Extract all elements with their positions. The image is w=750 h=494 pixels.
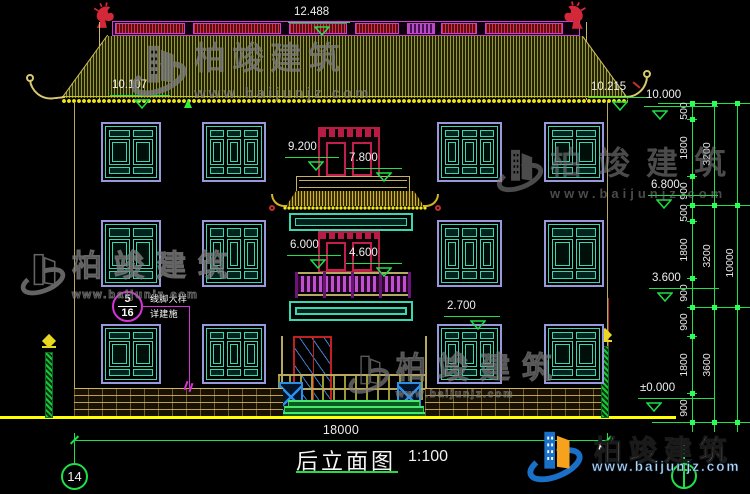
elevation-triangle-icon	[308, 158, 324, 168]
dimension-tick-marker	[735, 101, 740, 106]
window-pane-bot	[480, 369, 494, 376]
window	[101, 122, 161, 182]
window-inner-frame	[206, 126, 262, 178]
window-pane	[480, 228, 494, 279]
window-pane-top	[133, 130, 154, 137]
window-glass	[230, 242, 238, 267]
window-pane-top	[462, 332, 476, 339]
window-pane-mid	[445, 341, 459, 367]
window-pane-top	[552, 332, 573, 339]
window-pane-bot	[109, 271, 130, 279]
window-glass	[483, 242, 491, 267]
ridge-hatch-segment	[441, 23, 477, 34]
window-pane-bot	[133, 271, 154, 279]
window-pane-bot	[244, 369, 258, 376]
window-pane-mid	[109, 341, 130, 367]
window-pane-mid	[133, 239, 154, 270]
window-glass	[579, 242, 594, 267]
window-pane-top	[576, 130, 597, 137]
window-glass	[112, 242, 127, 267]
window-pane-mid	[552, 341, 573, 367]
window-pane-bot	[227, 167, 241, 174]
dimension-value: 1800	[678, 136, 690, 159]
ridge-hatch-segment	[355, 23, 399, 34]
window-pane-top	[480, 332, 494, 339]
watermark-url-text: www.baijunjz.com	[550, 187, 726, 200]
dimension-chain-line	[692, 103, 693, 432]
window-inner-frame	[548, 126, 600, 178]
window-glass	[213, 344, 221, 364]
window-glass	[579, 142, 594, 162]
dimension-tick-marker	[690, 219, 695, 224]
dimension-tick-marker	[690, 117, 695, 122]
dimension-value: 900	[678, 399, 690, 417]
window-pane-bot	[133, 369, 154, 376]
window-inner-frame	[105, 126, 157, 178]
window-pane	[210, 130, 224, 174]
elevation-triangle-icon	[612, 98, 628, 108]
detail-callout-bubble: 5 16	[112, 291, 143, 322]
dimension-value: 500	[678, 204, 690, 222]
grid-bubble: 14	[61, 463, 88, 490]
window-pane-mid	[462, 239, 476, 270]
window-pane-top	[244, 130, 258, 137]
window-inner-frame	[548, 328, 600, 380]
window-pane-bot	[552, 167, 573, 174]
grid-bubble-number: 14	[67, 469, 81, 484]
pavilion-tassel-icon	[269, 205, 275, 211]
window-pane-bot	[462, 369, 476, 376]
window-pane-bot	[552, 271, 573, 279]
window-pane-top	[576, 332, 597, 339]
brand-logo-url: www.baijunjz.com	[592, 459, 741, 474]
ridge-hatch-segment	[193, 23, 281, 34]
window-pane-top	[480, 228, 494, 237]
window-pane-mid	[244, 239, 258, 270]
window	[544, 324, 604, 384]
window-glass	[112, 344, 127, 364]
ridge-dragon-left-icon	[90, 2, 117, 30]
window-glass	[555, 142, 570, 162]
elevation-triangle-icon	[310, 256, 326, 266]
pavilion-upper-door	[326, 142, 346, 176]
grid-drop-line	[74, 441, 75, 463]
elevation-label: 10.215	[591, 81, 626, 93]
window-pane-bot	[445, 369, 459, 376]
window-pane	[576, 228, 597, 279]
elevation-triangle-icon	[470, 317, 486, 327]
window-pane-bot	[480, 271, 494, 279]
eave-curl-right-hook	[643, 70, 651, 78]
window-glass	[213, 242, 221, 267]
dimension-tick-marker	[690, 391, 695, 396]
window-glass	[136, 242, 151, 267]
window-pane-top	[109, 332, 130, 339]
elevation-triangle-icon	[656, 196, 672, 206]
callout-text-bottom: 详建施	[150, 307, 178, 320]
window-pane	[227, 228, 241, 279]
leader-arrow-icon	[183, 96, 193, 114]
railing-post	[351, 272, 354, 298]
window-pane	[227, 130, 241, 174]
pavilion-ridge-beam	[296, 176, 410, 192]
window-pane-top	[133, 228, 154, 237]
window-glass	[112, 142, 127, 162]
eave-curl-left	[29, 76, 65, 101]
callout-leader-h	[143, 306, 189, 307]
elevation-triangle-icon	[657, 289, 673, 299]
window-pane	[244, 228, 258, 279]
window-pane	[445, 228, 459, 279]
window-pane-mid	[576, 139, 597, 165]
window-glass	[465, 242, 473, 267]
window-pane	[109, 130, 130, 174]
window-glass	[579, 344, 594, 364]
window-pane-top	[462, 228, 476, 237]
window-glass	[448, 142, 456, 162]
callout-text-top: 线脚大样	[150, 292, 187, 305]
window-pane-mid	[210, 139, 224, 165]
window	[202, 324, 266, 384]
elevation-label: 10.107	[112, 79, 147, 91]
dimension-tick-marker	[690, 334, 695, 339]
elevation-line	[346, 263, 402, 264]
window-pane-mid	[244, 341, 258, 367]
elevation-triangle-icon	[646, 399, 662, 409]
window-pane-top	[227, 228, 241, 237]
window-pane	[227, 332, 241, 376]
window-pane-bot	[552, 369, 573, 376]
window-inner-frame	[105, 224, 157, 283]
window-pane-bot	[244, 271, 258, 279]
dimension-tick-marker	[690, 276, 695, 281]
window-glass	[247, 242, 255, 267]
window-pane-mid	[244, 139, 258, 165]
window-pane-bot	[244, 167, 258, 174]
window-pane-bot	[480, 167, 494, 174]
dimension-chain-line	[737, 103, 738, 432]
balcony-railing	[295, 272, 411, 298]
window-pane-mid	[133, 139, 154, 165]
ridge-hatch-segment	[115, 23, 185, 34]
window-pane-bot	[109, 369, 130, 376]
window-glass	[483, 344, 491, 364]
window-pane	[552, 332, 573, 376]
elevation-triangle-icon	[652, 107, 668, 117]
total-width-dimension: 18000	[310, 423, 372, 437]
dimension-tick-marker	[690, 203, 695, 208]
window-pane-bot	[462, 271, 476, 279]
window-pane	[133, 332, 154, 376]
window-pane-bot	[462, 167, 476, 174]
window-pane-top	[227, 130, 241, 137]
window-pane-mid	[480, 139, 494, 165]
dimension-value: 500	[678, 102, 690, 120]
dimension-tick-marker	[690, 305, 695, 310]
window	[202, 220, 266, 287]
window-glass	[230, 344, 238, 364]
callout-number-bottom: 16	[121, 308, 133, 319]
elevation-line	[346, 168, 402, 169]
window-pane	[133, 228, 154, 279]
title-underline	[296, 471, 398, 473]
window-inner-frame	[441, 126, 498, 178]
window-pane	[445, 130, 459, 174]
elevation-label: 12.488	[294, 6, 329, 18]
window-pane	[480, 332, 494, 376]
callout-number-top: 5	[124, 294, 130, 305]
lamp-pole-left	[45, 352, 53, 418]
window	[437, 220, 502, 287]
elevation-triangle-icon	[134, 96, 150, 106]
window-pane-top	[480, 130, 494, 137]
window-glass	[465, 142, 473, 162]
pavilion-teal-beam-lower	[289, 301, 413, 321]
window-pane-mid	[109, 139, 130, 165]
pavilion-eave-fringe	[283, 205, 427, 211]
railing-post	[295, 272, 298, 298]
window-pane-top	[133, 332, 154, 339]
window-pane-bot	[133, 167, 154, 174]
window-pane-mid	[552, 239, 573, 270]
window-pane	[109, 228, 130, 279]
dimension-value: 900	[678, 284, 690, 302]
window-pane-mid	[133, 341, 154, 367]
brand-logo-icon	[524, 426, 586, 486]
callout-leader-v	[189, 306, 190, 389]
window	[101, 220, 161, 287]
window	[437, 324, 502, 384]
window-pane-mid	[462, 139, 476, 165]
dimension-value: 10000	[724, 248, 736, 277]
window-pane-mid	[445, 239, 459, 270]
pavilion-middle-door	[326, 242, 346, 271]
window-pane	[552, 130, 573, 174]
window-pane-mid	[445, 139, 459, 165]
elevation-triangle-icon	[314, 23, 330, 33]
window-pane-bot	[210, 369, 224, 376]
dimension-tick-marker	[690, 420, 695, 425]
elevation-triangle-icon	[376, 169, 392, 179]
window-pane-top	[210, 130, 224, 137]
window-pane-bot	[576, 271, 597, 279]
window-pane	[462, 130, 476, 174]
dimension-value: 900	[678, 313, 690, 331]
window-inner-frame	[441, 328, 498, 380]
window	[202, 122, 266, 182]
watermark-logo-icon	[18, 250, 68, 305]
railing-post	[408, 272, 411, 298]
teal-beam-inner	[295, 218, 407, 226]
elevation-label: 10.000	[646, 89, 681, 101]
dimension-chain-line	[714, 103, 715, 432]
window-pane-bot	[109, 167, 130, 174]
window-pane-mid	[210, 341, 224, 367]
window-pane-top	[462, 130, 476, 137]
window-pane	[210, 332, 224, 376]
window-pane-top	[576, 228, 597, 237]
dimension-value: 3600	[701, 353, 713, 376]
window-glass	[136, 142, 151, 162]
rear-elevation-drawing: 5 16 线脚大样 详建施 18000 14 后立面图 1:100 柏竣建筑 w…	[0, 0, 750, 494]
window-pane-top	[244, 228, 258, 237]
elevation-label: 4.600	[349, 247, 378, 259]
pavilion-roof	[286, 191, 424, 206]
window-pane	[552, 228, 573, 279]
window-glass	[230, 142, 238, 162]
window-glass	[213, 142, 221, 162]
window-pane	[462, 332, 476, 376]
window-pane-mid	[227, 341, 241, 367]
window-pane-bot	[445, 271, 459, 279]
dimension-value: 1800	[678, 238, 690, 261]
brick-base-right	[425, 388, 607, 417]
elevation-label: 7.800	[349, 152, 378, 164]
elevation-label: 9.200	[288, 141, 317, 153]
window-pane-bot	[227, 271, 241, 279]
window-pane-mid	[480, 341, 494, 367]
ground-line	[0, 416, 676, 419]
window-pane	[210, 228, 224, 279]
dimension-value: 3200	[701, 244, 713, 267]
window-pane	[133, 130, 154, 174]
window-glass	[555, 242, 570, 267]
window-pane-top	[552, 130, 573, 137]
window-glass	[448, 242, 456, 267]
window-pane	[576, 332, 597, 376]
roof-ridge-band	[112, 21, 580, 36]
window-pane	[109, 332, 130, 376]
eave-curl-left-hook	[26, 74, 34, 82]
window-glass	[247, 142, 255, 162]
beam-line	[299, 187, 407, 188]
window-pane-bot	[210, 167, 224, 174]
window-pane-top	[210, 228, 224, 237]
window-pane-mid	[576, 239, 597, 270]
dimension-value: 900	[678, 182, 690, 200]
window-pane-bot	[576, 167, 597, 174]
dimension-tick-marker	[690, 174, 695, 179]
window-pane-top	[227, 332, 241, 339]
window-pane-top	[445, 228, 459, 237]
dimension-tick-marker	[735, 420, 740, 425]
dimension-chain-boundary	[688, 205, 750, 206]
dimension-tick-marker	[735, 305, 740, 310]
elevation-triangle-icon	[376, 264, 392, 274]
pavilion-teal-beam-upper	[289, 213, 413, 231]
pavilion-tassel-icon	[435, 205, 441, 211]
ridge-hatch-segment	[485, 23, 563, 34]
pavilion-middle-band	[320, 233, 378, 239]
window-pane-mid	[109, 239, 130, 270]
dimension-chain-boundary	[688, 307, 750, 308]
window	[544, 122, 604, 182]
wall-edge-left	[74, 102, 75, 417]
window-pane	[244, 130, 258, 174]
elevation-label: 6.000	[290, 239, 319, 251]
elevation-label: 6.800	[651, 179, 680, 191]
window-glass	[247, 344, 255, 364]
window-pane-top	[244, 332, 258, 339]
window-inner-frame	[548, 224, 600, 283]
dimension-tick-marker	[712, 420, 717, 425]
window-pane	[462, 228, 476, 279]
lamp-crossbar-left	[42, 346, 56, 348]
brick-base-left	[74, 388, 283, 417]
ridge-purple-segment	[407, 23, 435, 34]
teal-beam-inner	[295, 307, 407, 315]
window-pane	[445, 332, 459, 376]
window-inner-frame	[105, 328, 157, 380]
window-pane	[480, 130, 494, 174]
window	[101, 324, 161, 384]
window-pane-mid	[462, 341, 476, 367]
porch-rail-top	[278, 374, 426, 376]
window-pane-mid	[576, 341, 597, 367]
dimension-value: 3200	[701, 142, 713, 165]
window-pane-top	[445, 130, 459, 137]
window-pane-mid	[480, 239, 494, 270]
window-pane-top	[109, 228, 130, 237]
window-pane	[244, 332, 258, 376]
dimension-value: 1800	[678, 353, 690, 376]
window-glass	[465, 344, 473, 364]
pavilion-upper-band	[320, 129, 378, 137]
elevation-label: ±0.000	[640, 382, 675, 394]
window-pane-mid	[227, 239, 241, 270]
window-pane-top	[445, 332, 459, 339]
window-glass	[555, 344, 570, 364]
window-pane	[576, 130, 597, 174]
window-pane-mid	[227, 139, 241, 165]
dimension-tick-marker	[712, 305, 717, 310]
window-pane-top	[109, 130, 130, 137]
railing-post	[323, 272, 326, 298]
window	[544, 220, 604, 287]
window	[437, 122, 502, 182]
elevation-label: 3.600	[652, 272, 681, 284]
window-inner-frame	[206, 328, 262, 380]
window-pane-bot	[576, 369, 597, 376]
dimension-tick-marker	[712, 203, 717, 208]
window-pane-top	[552, 228, 573, 237]
window-pane-bot	[227, 369, 241, 376]
window-inner-frame	[206, 224, 262, 283]
window-glass	[483, 142, 491, 162]
window-inner-frame	[441, 224, 498, 283]
window-pane-top	[210, 332, 224, 339]
window-glass	[136, 344, 151, 364]
window-pane-bot	[210, 271, 224, 279]
window-pane-bot	[445, 167, 459, 174]
window-pane-mid	[210, 239, 224, 270]
window-pane-mid	[552, 139, 573, 165]
window-glass	[448, 344, 456, 364]
elevation-label: 2.700	[447, 300, 476, 312]
dimension-tick-marker	[735, 203, 740, 208]
drawing-scale: 1:100	[408, 448, 448, 466]
